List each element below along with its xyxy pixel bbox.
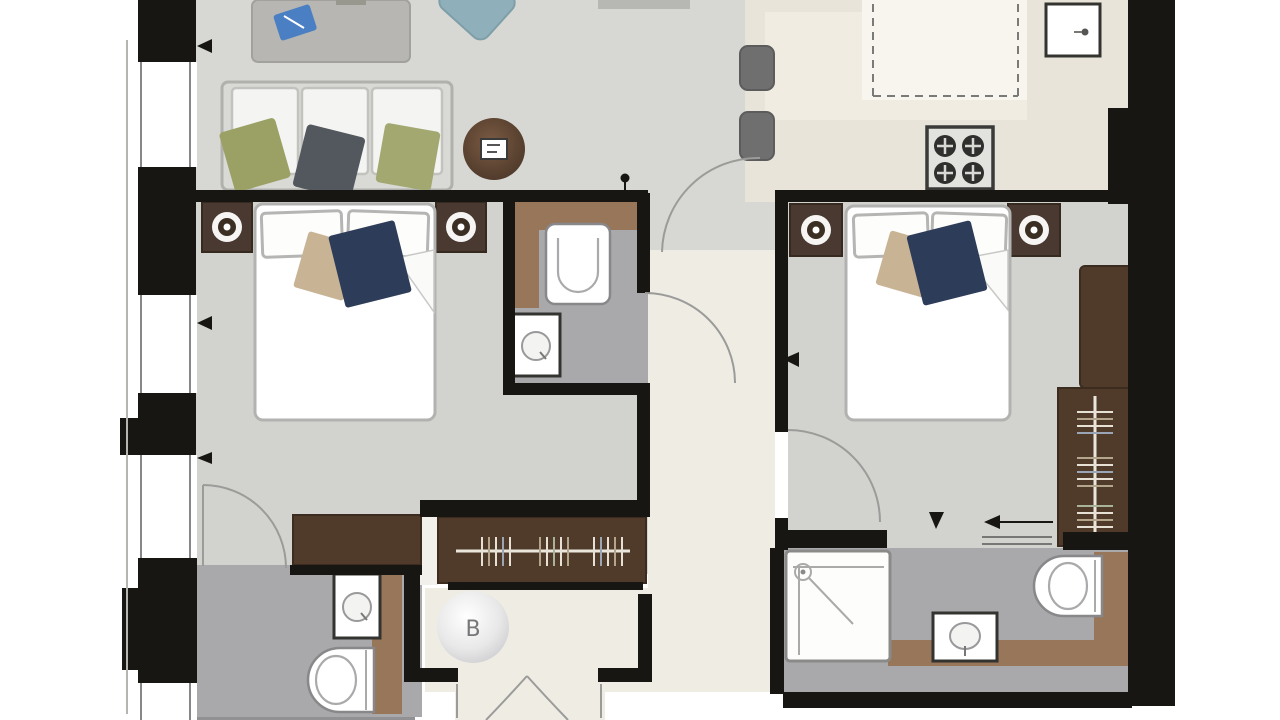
lamp bbox=[446, 212, 476, 242]
shower-head-dot bbox=[801, 570, 806, 575]
wall bbox=[420, 668, 458, 682]
basin-bowl bbox=[950, 623, 980, 649]
cropped-furniture bbox=[598, 0, 690, 9]
lamp bbox=[212, 212, 242, 242]
wall-pier bbox=[138, 393, 196, 455]
floor-plan: B bbox=[0, 0, 1280, 720]
wall bbox=[420, 500, 650, 517]
wall bbox=[637, 193, 650, 293]
wall bbox=[770, 548, 784, 694]
kitchen-sink-tap bbox=[1082, 29, 1089, 36]
window bbox=[133, 62, 197, 167]
wall bbox=[637, 383, 650, 505]
wall bbox=[503, 383, 650, 395]
olive-cushion bbox=[375, 123, 441, 192]
exterior-wall bbox=[1108, 108, 1130, 204]
wall bbox=[404, 565, 420, 682]
wall bbox=[783, 692, 1132, 708]
wall bbox=[196, 190, 648, 202]
side-table-tray bbox=[481, 139, 507, 159]
bar-stool bbox=[740, 46, 774, 90]
wall bbox=[775, 202, 788, 432]
wall-pier bbox=[138, 558, 197, 683]
exterior-wall bbox=[1128, 0, 1175, 706]
hall-marker: B bbox=[437, 591, 509, 663]
bar-stool bbox=[740, 112, 774, 160]
toilet-bowl bbox=[316, 656, 356, 704]
corridor-floor bbox=[648, 250, 775, 590]
chest-of-drawers bbox=[1080, 266, 1132, 388]
marker-label: B bbox=[465, 617, 480, 642]
window bbox=[133, 455, 197, 558]
coffee-table-item bbox=[336, 0, 366, 5]
wall bbox=[775, 190, 1128, 202]
kitchen-sink bbox=[1046, 4, 1100, 56]
window bbox=[133, 295, 197, 393]
toilet-bowl bbox=[558, 238, 598, 292]
wall bbox=[1063, 532, 1132, 550]
window bbox=[133, 683, 197, 720]
wall bbox=[638, 594, 652, 682]
entrance-threshold bbox=[455, 682, 605, 720]
wardrobe-niche bbox=[420, 517, 438, 585]
cabinet bbox=[293, 515, 421, 565]
lamp bbox=[801, 215, 831, 245]
wall bbox=[503, 193, 515, 395]
wall bbox=[783, 530, 887, 548]
hall-wardrobe bbox=[438, 517, 646, 583]
basin-bowl bbox=[343, 593, 371, 621]
wall bbox=[290, 565, 422, 575]
corridor-top-floor bbox=[648, 202, 775, 254]
wall-pier bbox=[122, 588, 140, 670]
kitchen-island bbox=[862, 0, 1027, 100]
lamp bbox=[1019, 215, 1049, 245]
wall-pier bbox=[120, 418, 140, 455]
wall bbox=[448, 582, 643, 590]
basin-bowl bbox=[522, 332, 550, 360]
bathroom-counter bbox=[513, 230, 539, 308]
wall-pier bbox=[138, 0, 196, 62]
wall-pier bbox=[138, 167, 196, 295]
toilet-bowl bbox=[1049, 563, 1087, 609]
floor-plan-drawing: B bbox=[0, 0, 1280, 720]
coffee-table bbox=[252, 0, 410, 62]
